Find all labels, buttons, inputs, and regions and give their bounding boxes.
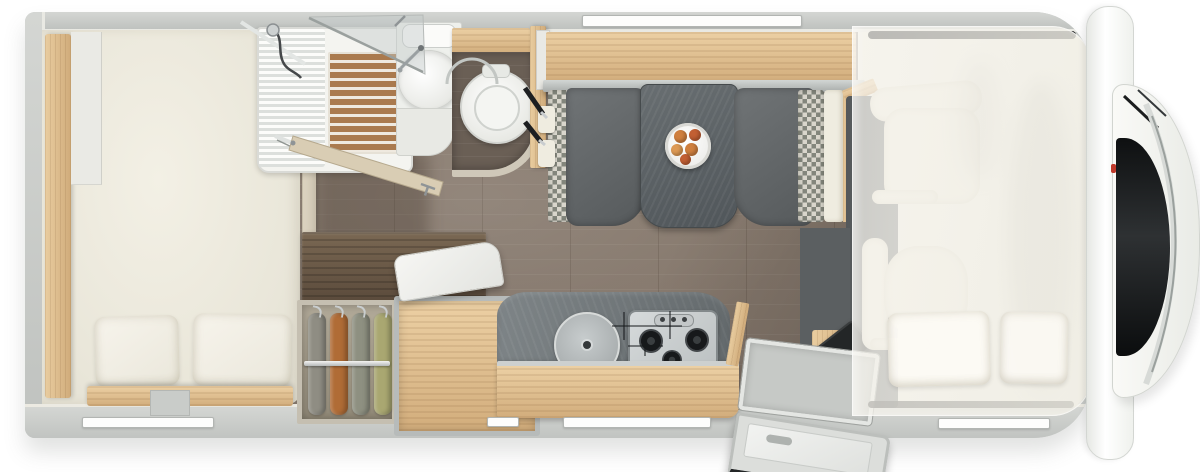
right-bench-side-cushion: [824, 90, 844, 222]
hob-knob-panel: [654, 314, 694, 327]
left-bench: [566, 88, 646, 226]
window-bottom-bedroom: [82, 417, 214, 428]
wardrobe-interior: [302, 305, 392, 419]
bed-pillow-left: [94, 315, 180, 387]
bed-foot-cabinet: [150, 390, 190, 416]
fruit-plate: [665, 123, 711, 169]
fruit-2: [689, 129, 701, 141]
hob-knob-1: [660, 317, 665, 322]
window-bottom-cab: [938, 418, 1050, 429]
fruit-1: [674, 130, 687, 143]
left-bench-armrest-1: [538, 106, 555, 133]
fruit-5: [680, 154, 691, 165]
vehicle-body: [25, 12, 1090, 438]
bed-headboard-trim: [45, 34, 71, 398]
brand-badge: [1111, 164, 1116, 173]
toilet-bowl: [474, 85, 520, 131]
shower-ribbed-panel: [259, 29, 325, 167]
wardrobe: [297, 300, 397, 424]
dinette-overhead-shelf: [546, 32, 856, 82]
right-bench-backrest: [798, 90, 824, 222]
upper-basin: [402, 24, 456, 48]
dinette-table: [640, 84, 738, 228]
floorplan-canvas: [0, 0, 1200, 472]
toilet-shelf: [452, 28, 530, 54]
washbasin-cabinet: [396, 108, 454, 156]
hob-knob-2: [671, 317, 676, 322]
kitchen-front-fascia: [497, 361, 739, 418]
drop-down-bed-pillow-left: [887, 311, 991, 388]
toilet-hinge: [482, 64, 510, 78]
bed-side-cabinet: [71, 32, 102, 185]
entry-door-inner-panel: [743, 423, 873, 472]
hob-burner-right: [685, 328, 709, 352]
window-bottom-small: [487, 417, 519, 427]
hob-burner-left: [639, 329, 663, 353]
bed-foot-rail: [87, 386, 293, 406]
wardrobe-rail: [304, 361, 390, 366]
window-bottom-kitchen: [563, 417, 711, 428]
washbasin-bowl: [398, 50, 460, 110]
drop-down-bed-pillow-right: [999, 311, 1068, 384]
left-bench-armrest-2: [538, 140, 555, 167]
bed-pillow-right: [192, 313, 291, 387]
window-top-dinette: [582, 15, 802, 27]
sink-lid-knob: [583, 341, 591, 349]
hob-knob-3: [682, 317, 687, 322]
